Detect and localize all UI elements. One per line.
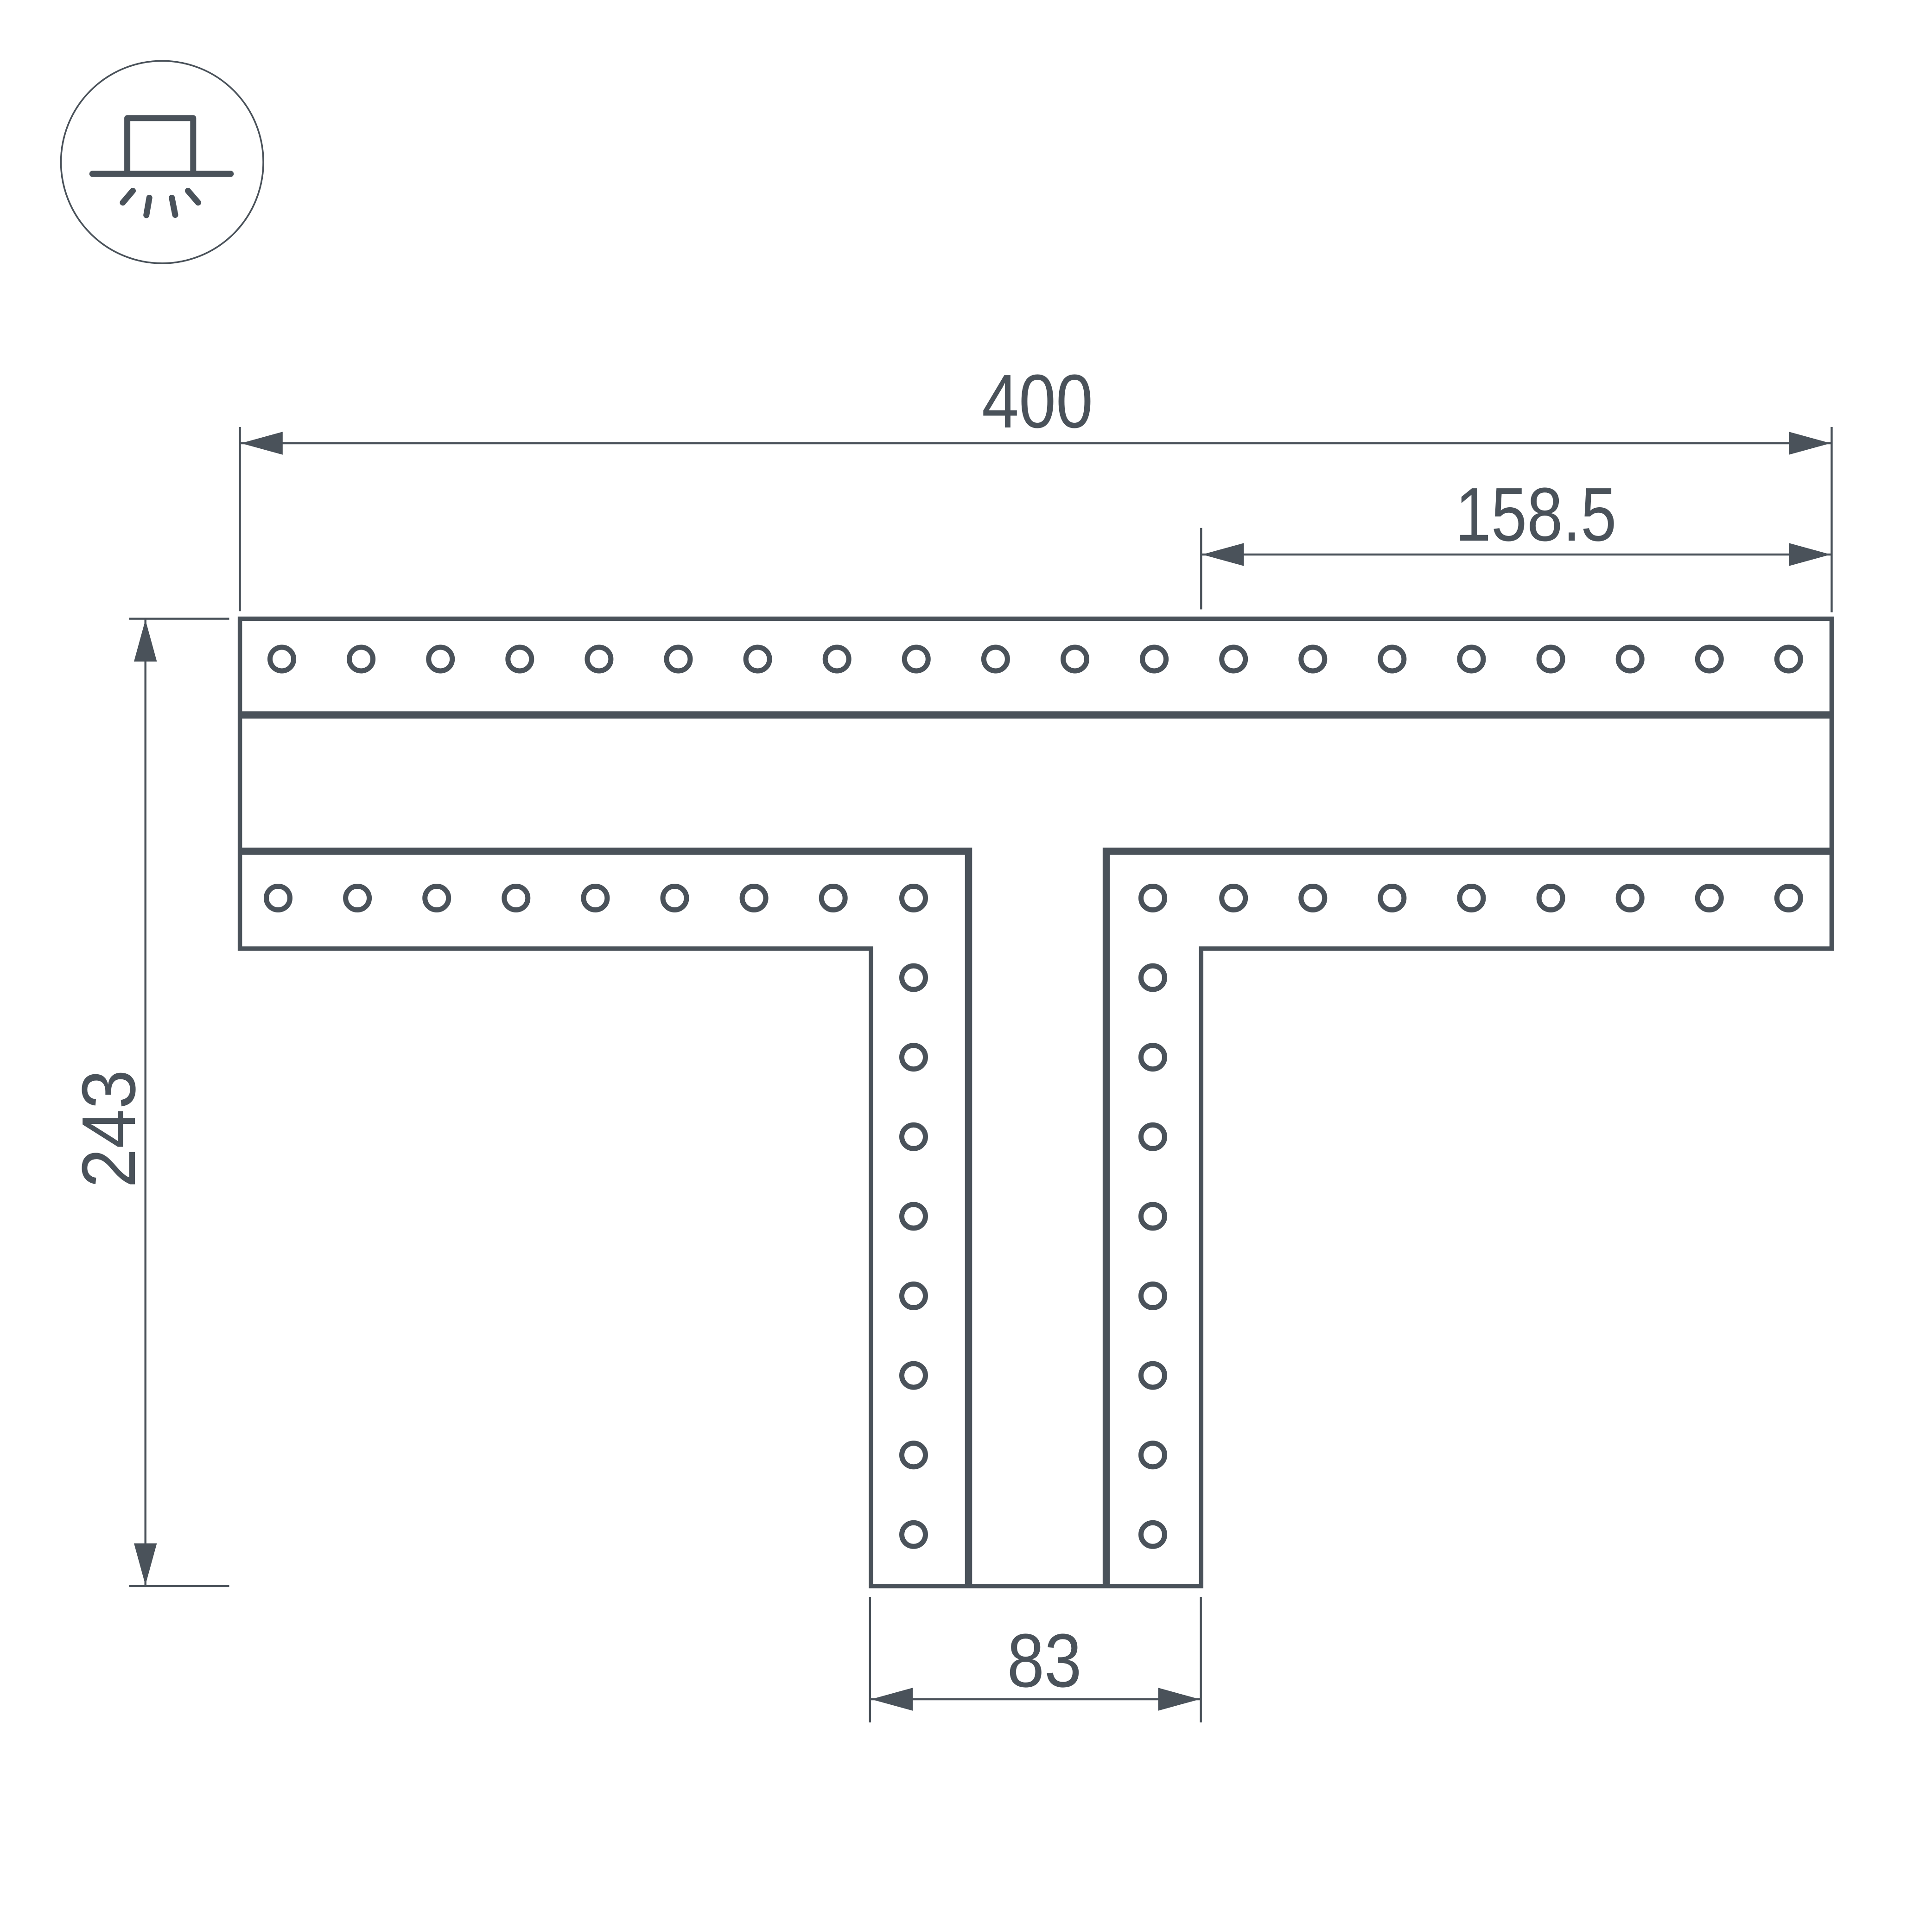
svg-text:158.5: 158.5: [1455, 472, 1617, 557]
svg-text:83: 83: [1007, 1618, 1082, 1703]
svg-text:400: 400: [982, 359, 1093, 444]
svg-text:243: 243: [66, 1070, 151, 1188]
